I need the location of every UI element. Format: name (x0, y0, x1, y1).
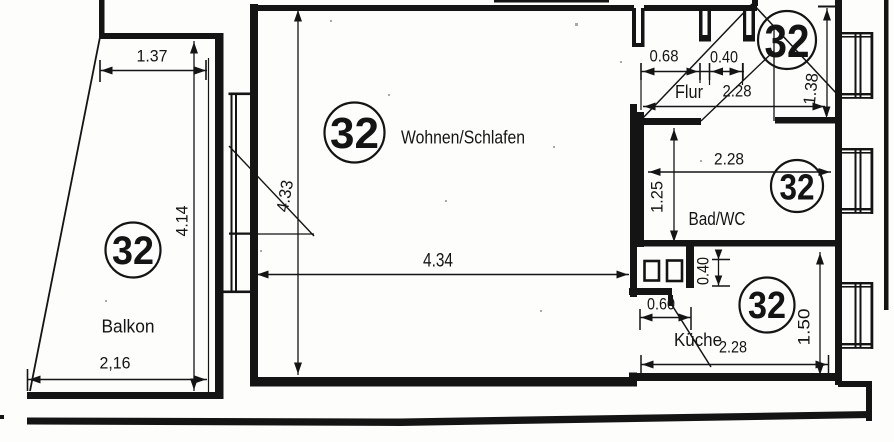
svg-text:0.60: 0.60 (647, 295, 675, 314)
svg-text:0.40: 0.40 (694, 257, 713, 285)
svg-text:0.68: 0.68 (650, 47, 679, 66)
svg-text:32: 32 (748, 285, 786, 327)
svg-text:1.50: 1.50 (795, 309, 814, 346)
svg-text:Balkon: Balkon (102, 316, 155, 337)
svg-text:4.34: 4.34 (423, 251, 453, 272)
svg-text:1.38: 1.38 (800, 72, 822, 106)
svg-text:1.25: 1.25 (648, 181, 667, 213)
svg-text:2.28: 2.28 (714, 150, 744, 169)
svg-text:32: 32 (330, 109, 379, 158)
svg-text:Bad/WC: Bad/WC (689, 209, 746, 229)
svg-text:2,16: 2,16 (100, 354, 131, 373)
svg-text:Wohnen/Schlafen: Wohnen/Schlafen (401, 127, 525, 148)
svg-text:2.28: 2.28 (719, 338, 747, 357)
svg-text:1.37: 1.37 (137, 47, 168, 66)
svg-text:2.28: 2.28 (723, 82, 752, 101)
svg-text:4.14: 4.14 (173, 206, 192, 237)
svg-text:0.40: 0.40 (710, 48, 738, 67)
svg-text:Küche: Küche (674, 330, 722, 350)
svg-text:32: 32 (780, 167, 815, 208)
svg-text:32: 32 (112, 229, 154, 273)
svg-text:32: 32 (765, 15, 810, 67)
svg-text:Flur: Flur (675, 82, 703, 102)
